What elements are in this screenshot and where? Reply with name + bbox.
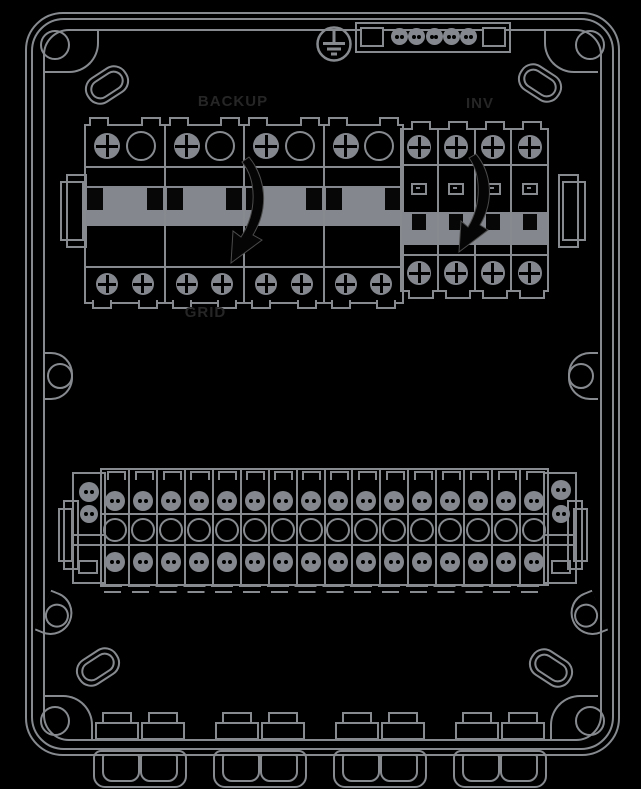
screw-terminal-icon — [407, 261, 431, 285]
breaker-bottom-terminals — [325, 266, 403, 300]
screw-terminal-icon — [105, 491, 125, 511]
cable-gland-icon — [332, 710, 428, 788]
label-grid: GRID — [158, 304, 253, 321]
terminal-block — [156, 470, 184, 584]
terminal-strip — [100, 468, 549, 586]
breaker-pole — [323, 126, 403, 302]
test-button-icon — [364, 131, 394, 161]
screw-terminal-icon — [524, 491, 544, 511]
screw-terminal-icon — [176, 273, 198, 295]
wire-port-icon — [243, 518, 267, 542]
screw-terminal-icon — [245, 552, 265, 572]
terminal-block — [519, 470, 547, 584]
corner-screw-icon — [40, 30, 70, 60]
screw-terminal-icon — [460, 28, 477, 45]
terminal-strip-feet — [104, 591, 541, 593]
screw-terminal-icon — [255, 273, 277, 295]
ground-screw-icon — [314, 24, 354, 64]
breaker-handle — [86, 186, 164, 226]
breaker-bottom-terminal — [512, 254, 547, 290]
terminal-block — [240, 470, 268, 584]
screw-terminal-icon — [384, 552, 404, 572]
screw-terminal-icon — [217, 552, 237, 572]
wire-port-icon — [382, 518, 406, 542]
breaker-bottom-terminals — [86, 266, 164, 300]
pe-bar-end-block — [482, 27, 506, 47]
screw-terminal-icon — [412, 491, 432, 511]
screw-terminal-icon — [444, 261, 468, 285]
terminal-strip-feet — [100, 585, 545, 587]
screw-terminal-icon — [518, 261, 542, 285]
screw-terminal-icon — [496, 552, 516, 572]
breaker-handle — [402, 212, 437, 245]
switch-direction-arrow-icon — [453, 153, 501, 255]
status-window-icon — [522, 183, 538, 195]
wire-port-icon — [466, 518, 490, 542]
screw-terminal-icon — [301, 552, 321, 572]
terminal-block — [351, 470, 379, 584]
terminal-block — [184, 470, 212, 584]
switch-direction-arrow-icon — [222, 156, 274, 266]
wire-port-icon — [410, 518, 434, 542]
cable-gland-icon — [452, 710, 548, 788]
breaker-top-terminal — [402, 130, 437, 166]
screw-terminal-icon — [335, 273, 357, 295]
screw-terminal-icon — [189, 491, 209, 511]
screw-terminal-icon — [96, 273, 118, 295]
breaker-bottom-terminal — [439, 254, 474, 290]
terminal-block — [212, 470, 240, 584]
screw-terminal-icon — [105, 552, 125, 572]
wire-port-icon — [438, 518, 462, 542]
breaker-pole — [510, 130, 547, 290]
screw-terminal-icon — [426, 28, 443, 45]
cable-gland-row — [92, 710, 548, 788]
terminal-block — [102, 470, 128, 584]
corner-screw-icon — [40, 706, 70, 736]
screw-terminal-icon — [518, 135, 542, 159]
breaker-body — [402, 166, 437, 212]
wire-port-icon — [326, 518, 350, 542]
screw-terminal-icon — [133, 552, 153, 572]
screw-terminal-icon — [94, 133, 120, 159]
wire-port-icon — [494, 518, 518, 542]
screw-terminal-icon — [440, 491, 460, 511]
screw-terminal-icon — [443, 28, 460, 45]
screw-terminal-icon — [356, 491, 376, 511]
terminal-block — [128, 470, 156, 584]
terminal-block — [324, 470, 352, 584]
corner-screw-icon — [575, 706, 605, 736]
screw-terminal-icon — [273, 491, 293, 511]
screw-terminal-icon — [391, 28, 408, 45]
test-button-icon — [126, 131, 156, 161]
breaker-body — [512, 166, 547, 212]
screw-terminal-icon — [174, 133, 200, 159]
cable-gland-icon — [92, 710, 188, 788]
wire-port-icon — [131, 518, 155, 542]
breaker-bottom-terminal — [476, 254, 511, 290]
screw-terminal-icon — [291, 273, 313, 295]
breaker-bottom-terminals — [245, 266, 323, 300]
breaker-handle — [325, 186, 403, 226]
pe-terminal-bar — [355, 22, 511, 53]
wire-port-icon — [187, 518, 211, 542]
enclosure-diagram: BACKUP — [0, 0, 641, 789]
wire-port-icon — [271, 518, 295, 542]
wire-port-icon — [159, 518, 183, 542]
breaker-bottom-terminals — [166, 266, 244, 300]
screw-terminal-icon — [370, 273, 392, 295]
screw-terminal-icon — [133, 491, 153, 511]
screw-terminal-icon — [161, 552, 181, 572]
screw-terminal-icon — [301, 491, 321, 511]
screw-terminal-icon — [245, 491, 265, 511]
terminal-block — [407, 470, 435, 584]
screw-terminal-icon — [524, 552, 544, 572]
wire-port-icon — [354, 518, 378, 542]
screw-terminal-icon — [407, 135, 431, 159]
cable-gland-icon — [212, 710, 308, 788]
breaker-top-terminals — [86, 126, 164, 168]
screw-terminal-icon — [412, 552, 432, 572]
screw-terminal-icon — [468, 552, 488, 572]
terminal-block — [379, 470, 407, 584]
screw-terminal-icon — [217, 491, 237, 511]
din-rail-end-icon — [558, 174, 579, 248]
pe-bar-screws — [391, 28, 477, 45]
terminal-block — [296, 470, 324, 584]
wire-port-icon — [103, 518, 127, 542]
screw-terminal-icon — [333, 133, 359, 159]
screw-terminal-icon — [273, 552, 293, 572]
breaker-bottom-terminal — [402, 254, 437, 290]
terminal-block — [268, 470, 296, 584]
breaker-handle — [512, 212, 547, 245]
wire-port-icon — [522, 518, 546, 542]
screw-terminal-icon — [356, 552, 376, 572]
breaker-pole — [402, 130, 437, 290]
screw-terminal-icon — [481, 261, 505, 285]
terminal-block — [463, 470, 491, 584]
corner-screw-icon — [575, 30, 605, 60]
test-button-icon — [285, 131, 315, 161]
terminal-block — [435, 470, 463, 584]
wire-port-icon — [299, 518, 323, 542]
wire-port-icon — [215, 518, 239, 542]
screw-terminal-icon — [211, 273, 233, 295]
screw-terminal-icon — [496, 491, 516, 511]
status-window-icon — [411, 183, 427, 195]
label-backup: BACKUP — [168, 93, 298, 110]
breaker-pole — [86, 126, 164, 302]
screw-terminal-icon — [384, 491, 404, 511]
screw-terminal-icon — [161, 491, 181, 511]
screw-terminal-icon — [440, 552, 460, 572]
screw-terminal-icon — [328, 491, 348, 511]
screw-terminal-icon — [328, 552, 348, 572]
screw-terminal-icon — [132, 273, 154, 295]
breaker-top-terminals — [325, 126, 403, 168]
screw-terminal-icon — [189, 552, 209, 572]
label-inv: INV — [450, 95, 510, 112]
breaker-top-terminal — [512, 130, 547, 166]
pe-bar-end-block — [360, 27, 384, 47]
terminal-block — [491, 470, 519, 584]
screw-terminal-icon — [408, 28, 425, 45]
screw-terminal-icon — [468, 491, 488, 511]
